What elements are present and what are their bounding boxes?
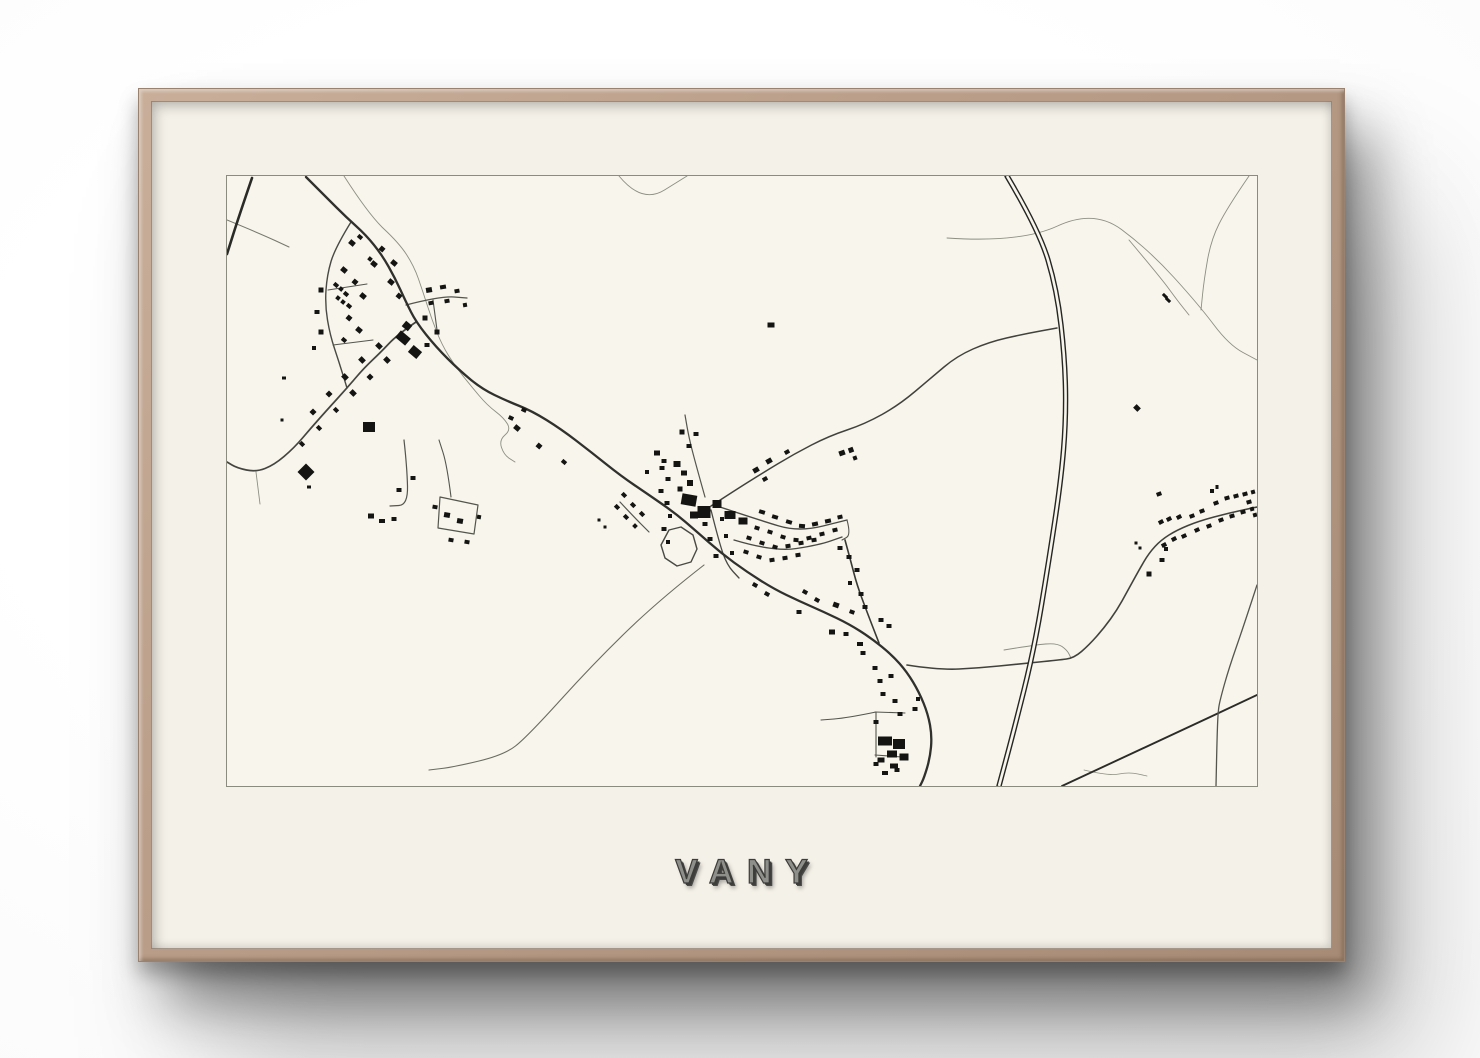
building-footprint [423,316,428,321]
building-footprint [1210,489,1214,493]
building-footprint [368,514,374,519]
building-footprint [874,720,879,724]
building-footprint [341,337,347,343]
building-footprint [366,373,373,380]
building-footprint [340,299,346,305]
building-footprint [408,345,422,359]
building-footprint [1164,547,1168,551]
building-footprint [383,356,391,364]
building-footprint [793,538,798,542]
building-footprint [832,602,839,609]
building-footprint [889,674,894,678]
building-footprint [333,282,339,288]
building-footprint [345,314,352,321]
building-footprint [739,518,748,525]
building-footprint [426,287,433,293]
building-footprint [849,609,855,614]
building-footprint [812,521,819,526]
building-footprint [752,466,760,473]
building-footprint [477,515,482,520]
building-footprint [743,549,749,554]
building-footprint [316,425,322,431]
building-footprint [333,407,339,413]
building-footprint [1147,572,1152,577]
building-footprint [623,514,629,520]
map-panel [227,176,1257,786]
building-footprint [1213,500,1219,505]
building-footprint [1176,514,1182,520]
building-footprint [838,546,843,550]
building-footprint [359,292,367,300]
building-footprint [1233,493,1239,498]
building-footprint [882,771,888,775]
building-footprint [1156,491,1162,496]
building-footprint [678,487,683,492]
building-footprint [457,518,464,524]
building-footprint [1160,558,1165,562]
building-footprint [370,260,378,268]
building-footprint [312,346,316,350]
building-footprint [687,444,692,448]
building-footprint [319,288,324,293]
building-footprint [348,239,356,247]
building-footprint [795,553,801,558]
building-footprint [799,524,805,529]
building-footprint [874,762,879,766]
building-footprint [762,476,768,482]
building-footprint [1158,519,1164,525]
building-footprint [1229,513,1235,518]
building-footprint [319,330,324,335]
building-footprint [1251,490,1256,495]
building-footprint [825,518,832,523]
poster-matte: VANY [151,101,1332,949]
building-footprint [349,389,357,397]
building-footprint [463,303,468,308]
building-footprint [724,534,728,538]
building-footprint [806,536,812,541]
building-footprint [819,532,825,537]
building-footprint [878,737,892,746]
building-footprint [662,527,667,531]
building-footprint [1224,495,1230,500]
building-footprint [780,534,786,539]
building-footprint [392,517,397,521]
building-footprint [666,477,671,481]
map-graphic [227,176,1257,786]
building-footprint [1166,516,1172,522]
building-footprint [887,624,892,628]
building-footprint [338,286,344,292]
building-footprint [725,511,736,519]
building-footprint [698,506,711,518]
building-footprint [847,555,852,559]
building-footprint [632,523,638,529]
building-footprint [879,618,884,622]
poster-sheet: VANY [151,101,1332,949]
building-footprint [1139,547,1142,550]
building-footprint [444,512,451,518]
building-footprint [357,234,363,240]
building-footprint [660,466,665,470]
building-footprint [785,544,791,549]
building-footprint [802,589,808,595]
building-footprint [1242,491,1248,496]
building-footprint [363,422,375,432]
building-footprint [881,692,886,696]
building-footprint [1189,513,1195,518]
building-footprint [395,330,411,345]
building-footprint [307,486,311,489]
building-footprint [765,457,773,464]
building-footprint [863,605,868,609]
building-footprint [614,504,620,510]
building-footprint [769,558,775,563]
building-footprint [767,529,773,534]
building-footprint [900,754,909,761]
building-footprint [411,476,416,480]
building-footprint [639,511,645,517]
building-footprint [690,512,698,519]
building-footprint [513,424,521,432]
building-footprint [1246,499,1252,504]
building-footprint [838,450,845,457]
building-footprint [837,515,843,520]
building-footprint [754,525,760,530]
building-footprint [1218,517,1224,522]
building-footprint [797,610,802,614]
building-footprint [878,758,885,763]
building-footprint [397,488,402,492]
building-footprint [703,522,708,526]
building-footprint [873,666,878,670]
building-footprint [861,651,866,655]
building-footprint [798,541,804,546]
building-footprint [916,697,920,701]
building-footprint [878,679,883,683]
building-footprint [346,303,352,309]
picture-frame: VANY [138,88,1345,962]
building-footprint [782,556,788,561]
poster-title: VANY [151,853,1332,892]
building-footprint [315,310,320,314]
building-footprint [811,538,817,543]
building-footprint [440,285,447,290]
building-footprint [448,538,454,543]
building-footprint [444,299,450,304]
building-footprint [621,492,627,498]
building-footprint [784,449,790,455]
building-footprint [832,528,838,533]
building-footprint [857,642,863,646]
building-footprint [756,554,762,559]
building-footprint [668,514,672,518]
building-footprint [282,377,286,380]
building-footprint [1133,404,1141,412]
building-footprint [759,509,766,515]
building-footprint [759,540,765,545]
building-footprint [659,489,664,493]
building-footprint [681,471,687,476]
building-footprint [335,295,341,301]
building-footprint [425,343,430,347]
building-footprint [662,459,667,463]
building-footprint [340,266,348,274]
building-footprint [351,278,358,285]
building-footprint [281,419,284,422]
building-footprint [730,551,734,555]
building-footprint [325,390,332,397]
building-footprint [630,502,636,508]
building-footprint [604,526,607,529]
building-footprint [674,461,681,467]
building-footprint [367,256,373,262]
building-footprint [645,470,649,474]
building-footprint [687,480,693,486]
building-footprint [598,519,601,522]
building-footprint [714,554,719,558]
building-footprint [893,699,898,703]
building-footprint [895,768,900,772]
building-footprint [713,500,722,508]
building-footprint [746,535,752,540]
building-footprint [1194,527,1200,533]
building-footprint [1216,485,1219,489]
building-footprint [680,430,685,435]
building-footprint [561,459,567,465]
building-footprint [1181,533,1187,539]
building-footprint [387,278,395,286]
building-footprint [848,447,854,453]
building-footprint [772,514,779,520]
building-footprint [848,581,852,585]
building-footprint [432,505,438,510]
building-footprint [752,582,758,588]
building-footprint [694,432,699,436]
building-footprint [428,301,434,306]
building-footprint [890,764,898,769]
building-footprint [913,707,918,711]
building-footprint [654,451,660,456]
building-footprint [298,464,315,481]
building-footprint [535,442,542,449]
building-footprint [508,415,514,421]
building-footprint [355,326,363,334]
building-footprint [786,519,793,525]
building-footprint [1253,513,1257,518]
building-footprint [844,632,849,636]
building-footprint [887,751,897,758]
building-footprint [464,540,470,545]
building-footprint [859,592,864,596]
building-footprint [708,537,713,541]
building-footprint [681,493,698,506]
building-footprint [665,501,670,505]
building-footprint [375,342,383,350]
building-footprint [343,291,349,297]
building-footprint [1135,542,1138,545]
building-footprint [720,517,724,521]
building-footprint [309,408,316,415]
building-footprint [454,289,460,294]
building-footprint [402,321,413,332]
building-footprint [435,330,440,335]
building-footprint [768,323,775,328]
building-footprint [852,455,857,460]
building-footprint [1206,523,1212,528]
building-footprint [390,259,398,267]
building-footprint [1171,536,1177,542]
building-footprint [898,712,903,716]
building-footprint [855,568,860,572]
building-footprint [893,739,905,749]
building-footprint [1199,508,1205,513]
building-footprint [379,519,385,523]
building-footprint [814,597,820,603]
building-footprint [666,540,670,544]
building-footprint [829,630,835,635]
building-footprint [358,356,366,364]
building-footprint [764,591,770,597]
